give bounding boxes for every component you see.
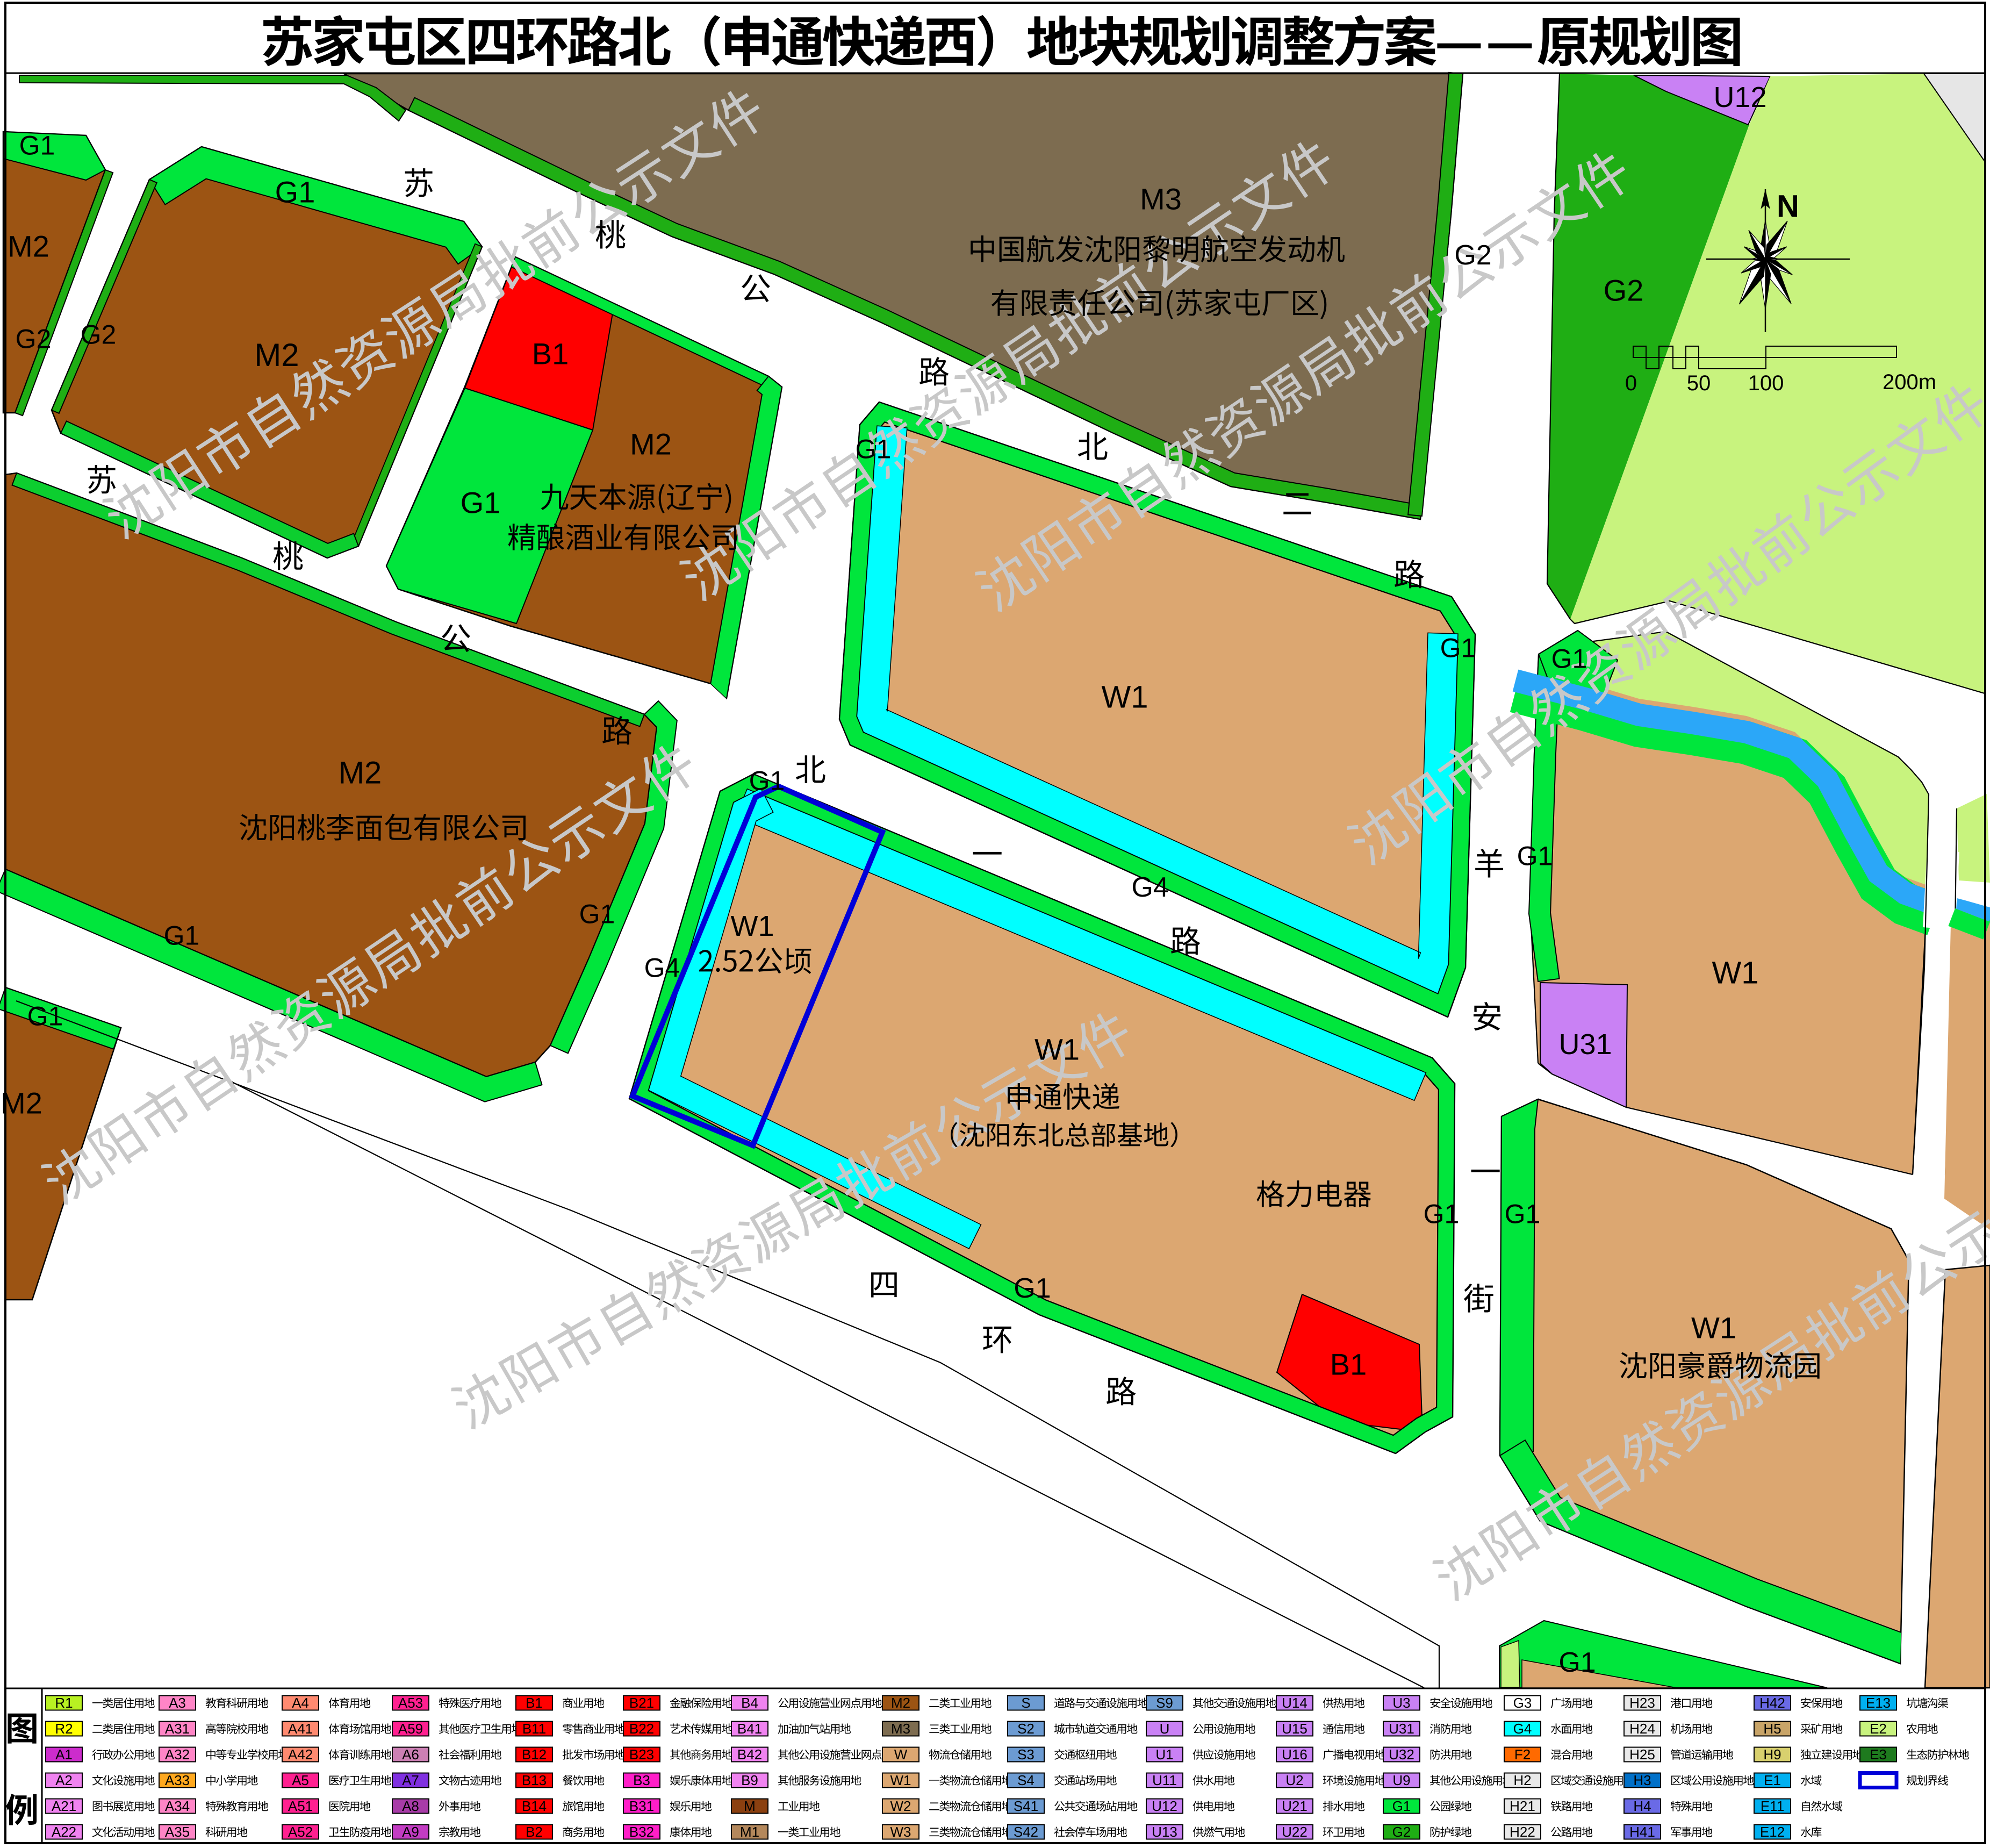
svg-text:G1: G1	[27, 1001, 63, 1032]
svg-text:B1: B1	[1330, 1348, 1367, 1381]
svg-text:M2: M2	[891, 1695, 910, 1711]
svg-text:W2: W2	[890, 1798, 911, 1814]
svg-text:B13: B13	[522, 1772, 547, 1788]
svg-text:M: M	[744, 1798, 756, 1814]
svg-text:H21: H21	[1510, 1798, 1535, 1814]
svg-text:E12: E12	[1760, 1824, 1785, 1840]
svg-text:A1: A1	[55, 1746, 73, 1763]
svg-text:F2: F2	[1514, 1746, 1531, 1763]
svg-text:A32: A32	[165, 1746, 190, 1763]
svg-text:U1: U1	[1155, 1746, 1173, 1763]
svg-text:G1: G1	[275, 175, 315, 209]
svg-text:H2: H2	[1513, 1772, 1531, 1788]
svg-text:H42: H42	[1759, 1695, 1785, 1711]
svg-text:A2: A2	[55, 1772, 73, 1788]
svg-text:W1: W1	[731, 910, 774, 942]
svg-text:G3: G3	[1513, 1695, 1532, 1711]
svg-text:S9: S9	[1156, 1695, 1173, 1711]
svg-text:A51: A51	[288, 1798, 313, 1814]
svg-text:A52: A52	[288, 1824, 313, 1840]
svg-text:B1: B1	[526, 1695, 543, 1711]
svg-text:B12: B12	[522, 1746, 547, 1763]
svg-text:G1: G1	[1505, 1199, 1541, 1229]
svg-text:E1: E1	[1764, 1772, 1781, 1788]
svg-text:G1: G1	[1551, 644, 1587, 674]
svg-text:G1: G1	[19, 131, 55, 161]
svg-text:E2: E2	[1870, 1721, 1887, 1737]
svg-text:B31: B31	[629, 1798, 654, 1814]
svg-text:G1: G1	[461, 486, 501, 520]
svg-text:G2: G2	[1604, 274, 1644, 307]
svg-text:G4: G4	[1513, 1721, 1532, 1737]
svg-text:A7: A7	[402, 1772, 419, 1788]
svg-text:U31: U31	[1558, 1028, 1612, 1061]
svg-text:H25: H25	[1629, 1746, 1655, 1763]
svg-text:H41: H41	[1629, 1824, 1655, 1840]
svg-text:U22: U22	[1282, 1824, 1307, 1840]
svg-text:B41: B41	[737, 1721, 762, 1737]
svg-text:A5: A5	[292, 1772, 309, 1788]
svg-text:B22: B22	[629, 1721, 654, 1737]
svg-text:A42: A42	[288, 1746, 313, 1763]
svg-text:U15: U15	[1282, 1721, 1307, 1737]
svg-text:B1: B1	[532, 337, 569, 371]
svg-text:M2: M2	[1, 1086, 42, 1120]
svg-text:S42: S42	[1014, 1824, 1038, 1840]
svg-text:S2: S2	[1017, 1721, 1034, 1737]
svg-text:A35: A35	[165, 1824, 190, 1840]
svg-text:M2: M2	[8, 230, 49, 263]
svg-text:U2: U2	[1285, 1772, 1303, 1788]
svg-text:B21: B21	[629, 1695, 654, 1711]
svg-text:W3: W3	[890, 1824, 911, 1840]
svg-text:M2: M2	[339, 755, 382, 790]
svg-text:S3: S3	[1017, 1746, 1034, 1763]
svg-text:U: U	[1160, 1721, 1170, 1737]
svg-text:G2: G2	[1454, 240, 1491, 271]
svg-text:G1: G1	[579, 899, 615, 929]
svg-text:M2: M2	[254, 337, 299, 373]
svg-text:N: N	[1777, 189, 1799, 224]
svg-text:W1: W1	[1102, 679, 1148, 714]
svg-text:M1: M1	[740, 1824, 759, 1840]
svg-text:H4: H4	[1633, 1798, 1651, 1814]
svg-text:M2: M2	[630, 427, 672, 461]
svg-text:H24: H24	[1629, 1721, 1655, 1737]
svg-text:U11: U11	[1152, 1772, 1177, 1788]
svg-text:100: 100	[1748, 371, 1784, 395]
svg-text:U9: U9	[1392, 1772, 1410, 1788]
svg-text:S4: S4	[1017, 1772, 1034, 1788]
svg-text:G1: G1	[1392, 1798, 1411, 1814]
svg-text:W: W	[894, 1746, 908, 1763]
svg-text:A53: A53	[398, 1695, 423, 1711]
svg-text:U14: U14	[1282, 1695, 1307, 1711]
svg-text:G1: G1	[749, 766, 785, 796]
svg-text:A41: A41	[288, 1721, 313, 1737]
svg-text:G1: G1	[856, 434, 892, 464]
svg-text:H3: H3	[1633, 1772, 1651, 1788]
svg-text:G1: G1	[1014, 1273, 1051, 1304]
svg-text:B23: B23	[629, 1746, 654, 1763]
svg-text:G1: G1	[1424, 1199, 1460, 1229]
svg-text:U31: U31	[1389, 1721, 1414, 1737]
svg-text:A22: A22	[52, 1824, 76, 1840]
svg-text:S41: S41	[1014, 1798, 1038, 1814]
svg-text:B4: B4	[741, 1695, 758, 1711]
svg-text:U21: U21	[1282, 1798, 1307, 1814]
svg-text:B32: B32	[629, 1824, 654, 1840]
svg-text:A59: A59	[398, 1721, 423, 1737]
svg-text:W1: W1	[890, 1772, 911, 1788]
svg-text:A3: A3	[169, 1695, 186, 1711]
svg-text:G2: G2	[16, 324, 52, 354]
svg-text:0: 0	[1625, 371, 1637, 395]
svg-text:200m: 200m	[1883, 370, 1936, 394]
svg-text:A4: A4	[292, 1695, 309, 1711]
svg-text:U32: U32	[1389, 1746, 1414, 1763]
svg-text:U12: U12	[1152, 1798, 1177, 1814]
svg-text:A8: A8	[402, 1798, 419, 1814]
svg-text:G2: G2	[1392, 1824, 1411, 1840]
svg-text:B9: B9	[741, 1772, 758, 1788]
svg-text:B2: B2	[526, 1824, 543, 1840]
svg-text:W1: W1	[1691, 1311, 1736, 1345]
svg-text:E3: E3	[1870, 1746, 1887, 1763]
svg-text:S: S	[1021, 1695, 1030, 1711]
svg-text:W1: W1	[1034, 1033, 1080, 1066]
svg-text:G1: G1	[1517, 841, 1553, 871]
svg-text:E11: E11	[1761, 1798, 1784, 1814]
svg-text:A33: A33	[165, 1772, 190, 1788]
svg-text:A6: A6	[402, 1746, 419, 1763]
svg-text:G2: G2	[81, 320, 117, 350]
svg-text:M3: M3	[891, 1721, 910, 1737]
svg-text:U16: U16	[1282, 1746, 1307, 1763]
svg-text:W1: W1	[1712, 955, 1759, 990]
svg-text:U13: U13	[1152, 1824, 1177, 1840]
svg-text:G1: G1	[1558, 1647, 1596, 1678]
svg-text:B42: B42	[737, 1746, 762, 1763]
svg-text:H23: H23	[1629, 1695, 1655, 1711]
svg-text:A31: A31	[165, 1721, 190, 1737]
svg-text:G4: G4	[1131, 872, 1168, 903]
svg-text:50: 50	[1687, 371, 1711, 395]
svg-text:G1: G1	[1440, 633, 1476, 663]
svg-text:E13: E13	[1866, 1695, 1891, 1711]
svg-text:U12: U12	[1713, 81, 1766, 113]
svg-text:B14: B14	[522, 1798, 547, 1814]
svg-text:A34: A34	[165, 1798, 190, 1814]
svg-text:R2: R2	[55, 1721, 73, 1737]
svg-text:B11: B11	[522, 1721, 546, 1737]
svg-text:H22: H22	[1510, 1824, 1535, 1840]
svg-text:U3: U3	[1392, 1695, 1410, 1711]
svg-text:A21: A21	[52, 1798, 76, 1814]
svg-text:M3: M3	[1140, 182, 1182, 216]
svg-text:H9: H9	[1763, 1746, 1781, 1763]
svg-text:B3: B3	[633, 1772, 650, 1788]
svg-text:R1: R1	[55, 1695, 73, 1711]
svg-text:G1: G1	[164, 921, 200, 951]
svg-text:A9: A9	[402, 1824, 419, 1840]
svg-text:H5: H5	[1763, 1721, 1781, 1737]
svg-text:G4: G4	[644, 953, 680, 983]
